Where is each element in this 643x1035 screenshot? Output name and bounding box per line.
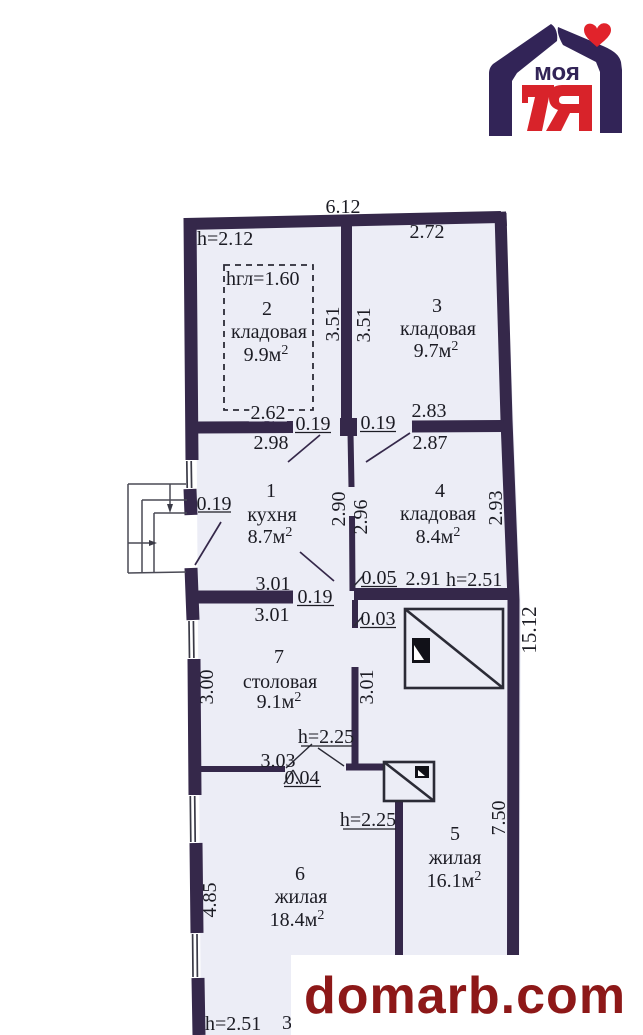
svg-text:2.98: 2.98 (254, 432, 289, 454)
svg-text:2.83: 2.83 (412, 400, 447, 422)
svg-text:7: 7 (274, 646, 284, 668)
svg-text:2.96: 2.96 (350, 500, 372, 535)
svg-text:h=2.25: h=2.25 (298, 726, 354, 748)
svg-text:16.1м2: 16.1м2 (427, 869, 482, 892)
svg-text:7.50: 7.50 (488, 801, 510, 836)
svg-text:кладовая: кладовая (400, 503, 476, 525)
svg-text:жилая: жилая (428, 847, 482, 869)
svg-text:6.12: 6.12 (326, 196, 361, 218)
svg-text:4: 4 (435, 480, 445, 502)
svg-text:6: 6 (295, 863, 305, 885)
svg-text:2.62: 2.62 (251, 402, 286, 424)
svg-text:1: 1 (266, 480, 276, 502)
svg-text:0.19: 0.19 (197, 493, 232, 515)
svg-text:h=2.25: h=2.25 (340, 809, 396, 831)
svg-text:жилая: жилая (274, 886, 328, 908)
svg-text:3: 3 (282, 1012, 292, 1034)
svg-text:2.93: 2.93 (485, 491, 507, 526)
svg-text:15.12: 15.12 (517, 606, 541, 653)
svg-text:18.4м2: 18.4м2 (270, 908, 325, 931)
svg-text:3.01: 3.01 (356, 670, 378, 705)
svg-text:кухня: кухня (247, 504, 296, 526)
svg-text:domarb.com: domarb.com (304, 967, 626, 1025)
svg-text:0.03: 0.03 (361, 608, 396, 630)
svg-text:5: 5 (450, 823, 460, 845)
svg-text:h=2.51: h=2.51 (446, 569, 502, 591)
svg-text:кладовая: кладовая (231, 321, 307, 343)
svg-text:hгл=1.60: hгл=1.60 (226, 268, 299, 290)
svg-text:столовая: столовая (243, 671, 317, 693)
svg-text:0.04: 0.04 (285, 767, 320, 789)
svg-text:0.05: 0.05 (362, 567, 397, 589)
svg-text:3: 3 (432, 295, 442, 317)
svg-text:3.01: 3.01 (255, 604, 290, 626)
svg-text:0.19: 0.19 (296, 413, 331, 435)
svg-text:3.51: 3.51 (322, 307, 344, 342)
svg-text:h=2.12: h=2.12 (197, 228, 253, 250)
svg-text:кладовая: кладовая (400, 318, 476, 340)
svg-text:3.51: 3.51 (353, 308, 375, 343)
svg-text:2.87: 2.87 (413, 432, 448, 454)
svg-text:2.91: 2.91 (406, 568, 441, 590)
svg-text:3.00: 3.00 (196, 670, 218, 705)
svg-text:0.19: 0.19 (361, 412, 396, 434)
svg-text:0.19: 0.19 (298, 586, 333, 608)
svg-text:моя: моя (534, 59, 580, 86)
svg-text:4.85: 4.85 (199, 883, 221, 918)
svg-text:2.90: 2.90 (328, 492, 350, 527)
svg-text:2: 2 (262, 298, 272, 320)
svg-text:3.01: 3.01 (256, 573, 291, 595)
svg-text:h=2.51: h=2.51 (205, 1013, 261, 1035)
svg-text:2.72: 2.72 (410, 221, 445, 243)
